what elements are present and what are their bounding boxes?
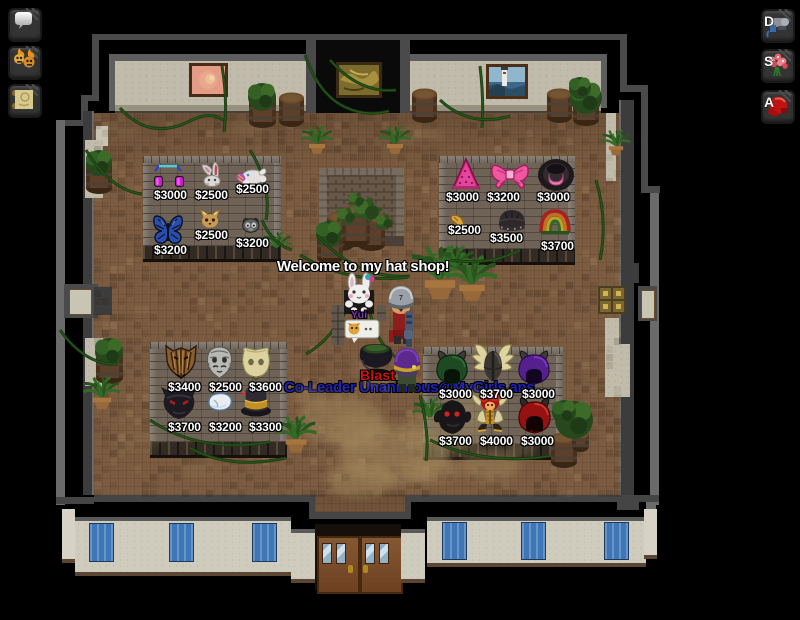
- svg-text:7: 7: [399, 295, 403, 302]
- svg-text:D: D: [764, 13, 774, 29]
- svg-text:S: S: [764, 53, 773, 69]
- svg-text:A: A: [764, 94, 774, 110]
